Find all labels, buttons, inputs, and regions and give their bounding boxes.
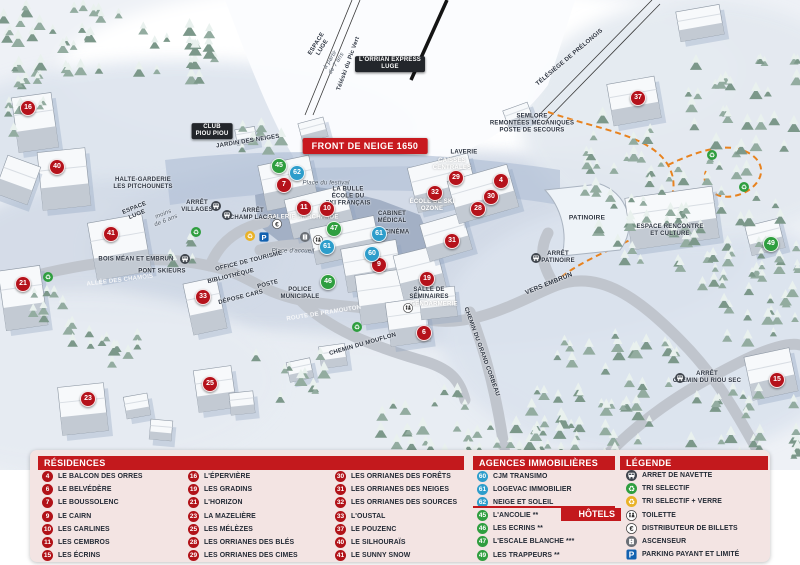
legend-panel: RÉSIDENCES 4LE BALCON DES ORRES6LE BELVÉ… [30, 450, 770, 562]
map-marker-29: 29 [448, 170, 464, 186]
item-label: LES CEMBROS [58, 539, 110, 546]
map-marker-30: 30 [483, 189, 499, 205]
recycle-yellow-icon: ♻ [626, 496, 637, 507]
agency-item: 61LOGEVAC IMMOBILIER [477, 483, 572, 496]
marker-number: 46 [477, 523, 488, 534]
marker-number: 4 [42, 471, 53, 482]
item-label: LA MAZELIÈRE [204, 513, 256, 520]
marker-number: 31 [335, 484, 346, 495]
map-label: L'ORRIAN EXPRESS LUGE [355, 56, 425, 72]
map-marker-37: 37 [630, 90, 646, 106]
residence-item: 41LE SUNNY SNOW [335, 549, 457, 562]
map-label: PONT SKIEURS [138, 269, 185, 276]
marker-number: 28 [188, 537, 199, 548]
marker-number: 19 [188, 484, 199, 495]
item-label: LE BELVÉDÈRE [58, 486, 112, 493]
residence-item: 37LE POUZENC [335, 523, 457, 536]
map-label: POLICE MUNICIPALE [281, 287, 320, 301]
residence-item: 7LE BOUSSOLENC [42, 496, 143, 509]
map-label: GENDARMERIE [410, 302, 457, 309]
svg-text:♻: ♻ [45, 274, 51, 282]
svg-text:€: € [629, 524, 633, 533]
residence-item: 11LES CEMBROS [42, 536, 143, 549]
item-label: LES MÉLÈZES [204, 526, 253, 533]
residence-item: 28LES ORRIANES DES BLÉS [188, 536, 298, 549]
marker-number: 47 [477, 536, 488, 547]
item-label: TOILETTE [642, 512, 676, 519]
svg-text:♻: ♻ [247, 233, 253, 241]
svg-text:♻: ♻ [628, 498, 635, 507]
item-label: L'OUSTAL [351, 513, 385, 520]
legend-item: TOILETTE [626, 509, 739, 522]
map-marker-62: 62 [289, 165, 305, 181]
bus-icon [180, 254, 190, 264]
residences-column-1: 4LE BALCON DES ORRES6LE BELVÉDÈRE7LE BOU… [42, 470, 143, 562]
item-label: PARKING PAYANT ET LIMITÉ [642, 551, 739, 558]
recycle-green-icon: ♻ [707, 150, 717, 160]
map-marker-10: 10 [319, 201, 335, 217]
residence-item: 32LES ORRIANES DES SOURCES [335, 496, 457, 509]
residence-item: 4LE BALCON DES ORRES [42, 470, 143, 483]
map-marker-61: 61 [371, 226, 387, 242]
hotel-item: 47L'ESCALE BLANCHE *** [477, 535, 574, 548]
item-label: L'HORIZON [204, 499, 243, 506]
map-label: ARRÊT VILLAGES [181, 200, 213, 214]
item-label: L'ÉPERVIÈRE [204, 473, 250, 480]
marker-number: 61 [477, 484, 488, 495]
residence-item: 19LES GRADINS [188, 483, 298, 496]
item-label: LES ÉCRINS [58, 552, 100, 559]
map-marker-60: 60 [364, 246, 380, 262]
residence-item: 21L'HORIZON [188, 496, 298, 509]
map-marker-33: 33 [195, 289, 211, 305]
bus-icon [211, 201, 221, 211]
map-label: SEMLORE REMONTÉES MÉCANIQUES POSTE DE SE… [490, 114, 574, 135]
marker-number: 9 [42, 511, 53, 522]
map-label: BOIS MÉAN ET EMBRUN [98, 257, 173, 264]
map-label: HALTE-GARDERIE LES PITCHOUNETS [113, 177, 172, 191]
marker-number: 33 [335, 511, 346, 522]
item-label: LOGEVAC IMMOBILIER [493, 486, 572, 493]
marker-number: 29 [188, 550, 199, 561]
recycle-green-icon: ♻ [739, 182, 749, 192]
legende-header: LÉGENDE [620, 456, 768, 470]
hotel-item: 49LES TRAPPEURS ** [477, 549, 574, 562]
map-marker-31: 31 [444, 233, 460, 249]
marker-number: 16 [188, 471, 199, 482]
elevator-icon [626, 536, 637, 547]
recycle-green-icon: ♻ [43, 272, 53, 282]
map-label: ARRÊT PATINOIRE [541, 251, 575, 265]
map-marker-41: 41 [103, 226, 119, 242]
bus-icon [531, 253, 541, 263]
marker-number: 11 [42, 537, 53, 548]
map-label: LAVERIE [451, 150, 478, 157]
legend-item: PPARKING PAYANT ET LIMITÉ [626, 548, 739, 561]
bus-icon [675, 373, 685, 383]
residence-item: 23LA MAZELIÈRE [188, 510, 298, 523]
residence-item: 40LE SILHOURAÏS [335, 536, 457, 549]
recycle-green-icon: ♻ [352, 322, 362, 332]
marker-number: 40 [335, 537, 346, 548]
marker-number: 6 [42, 484, 53, 495]
map-label: CINÉMA [385, 230, 410, 237]
marker-number: 21 [188, 497, 199, 508]
resort-map: ESPACE LUGEà partir de 7 ansTéléski du P… [0, 0, 800, 470]
item-label: L'ESCALE BLANCHE *** [493, 538, 574, 545]
marker-number: 60 [477, 471, 488, 482]
agencies-header: AGENCES IMMOBILIÈRES [473, 456, 615, 470]
map-marker-61: 61 [319, 239, 335, 255]
hotel-item: 46LES ECRINS ** [477, 522, 574, 535]
legend-item: €DISTRIBUTEUR DE BILLETS [626, 522, 739, 535]
marker-number: 37 [335, 524, 346, 535]
recycle-yellow-icon: ♻ [245, 231, 255, 241]
euro-icon: € [626, 523, 637, 534]
residence-item: 16L'ÉPERVIÈRE [188, 470, 298, 483]
map-marker-49: 49 [763, 236, 779, 252]
item-label: LES TRAPPEURS ** [493, 552, 560, 559]
map-banner: FRONT DE NEIGE 1650 [303, 138, 428, 154]
item-label: TRI SELECTIF [642, 485, 690, 492]
item-label: DISTRIBUTEUR DE BILLETS [642, 525, 738, 532]
svg-text:♻: ♻ [628, 485, 635, 494]
legend-item: ASCENSEUR [626, 535, 739, 548]
svg-text:P: P [261, 233, 266, 242]
item-label: LES ORRIANES DES NEIGES [351, 486, 449, 493]
marker-number: 15 [42, 550, 53, 561]
residence-item: 30LES ORRIANES DES FORÊTS [335, 470, 457, 483]
svg-text:P: P [629, 551, 635, 560]
residence-item: 15LES ÉCRINS [42, 549, 143, 562]
residence-item: 31LES ORRIANES DES NEIGES [335, 483, 457, 496]
map-marker-28: 28 [470, 201, 486, 217]
item-label: LES ECRINS ** [493, 525, 543, 532]
item-label: LES ORRIANES DES CIMES [204, 552, 298, 559]
item-label: ASCENSEUR [642, 538, 686, 545]
map-label: CLUB PIOU PIOU [192, 123, 233, 139]
residences-column-2: 16L'ÉPERVIÈRE19LES GRADINS21L'HORIZON23L… [188, 470, 298, 562]
marker-number: 23 [188, 511, 199, 522]
item-label: LES ORRIANES DES SOURCES [351, 499, 457, 506]
map-label: PATINOIRE [569, 214, 605, 221]
item-label: LES CARLINES [58, 526, 110, 533]
map-marker-47: 47 [326, 221, 342, 237]
svg-text:♻: ♻ [709, 152, 715, 160]
marker-number: 49 [477, 550, 488, 561]
item-label: L'ANCOLIE ** [493, 512, 538, 519]
item-label: LE CAIRN [58, 513, 91, 520]
toilet-icon [403, 303, 413, 313]
legend-item: ARRET DE NAVETTE [626, 469, 739, 482]
residence-item: 33L'OUSTAL [335, 510, 457, 523]
legend-item: ♻TRI SELECTIF [626, 482, 739, 495]
bus-icon [222, 210, 232, 220]
residence-item: 10LES CARLINES [42, 523, 143, 536]
residences-header: RÉSIDENCES [38, 456, 464, 470]
residence-item: 25LES MÉLÈZES [188, 523, 298, 536]
parking-icon: P [626, 549, 637, 560]
residences-column-3: 30LES ORRIANES DES FORÊTS31LES ORRIANES … [335, 470, 457, 562]
map-marker-25: 25 [202, 376, 218, 392]
marker-number: 25 [188, 524, 199, 535]
toilet-icon [626, 510, 637, 521]
legend-item: ♻TRI SELECTIF + VERRE [626, 495, 739, 508]
resort-map-page: ESPACE LUGEà partir de 7 ansTéléski du P… [0, 0, 800, 565]
marker-number: 10 [42, 524, 53, 535]
parking-icon: P [259, 232, 269, 242]
item-label: ARRET DE NAVETTE [642, 472, 712, 479]
item-label: LE BALCON DES ORRES [58, 473, 143, 480]
item-label: LES ORRIANES DES FORÊTS [351, 473, 451, 480]
map-marker-19: 19 [419, 271, 435, 287]
euro-icon: € [272, 219, 282, 229]
hotels-list: 45L'ANCOLIE **46LES ECRINS **47L'ESCALE … [477, 509, 574, 562]
map-marker-40: 40 [49, 159, 65, 175]
marker-number: 30 [335, 471, 346, 482]
map-marker-16: 16 [20, 100, 36, 116]
item-label: LES GRADINS [204, 486, 252, 493]
map-marker-45: 45 [271, 158, 287, 174]
map-marker-6: 6 [416, 325, 432, 341]
map-label: ÉCOLE DE SKI OZONE [410, 199, 455, 213]
marker-number: 41 [335, 550, 346, 561]
map-marker-21: 21 [15, 276, 31, 292]
item-label: LE POUZENC [351, 526, 396, 533]
svg-text:♻: ♻ [193, 229, 199, 237]
map-label: SALLE DE SÉMINAIRES [409, 287, 448, 301]
recycle-green-icon: ♻ [191, 227, 201, 237]
map-marker-46: 46 [320, 274, 336, 290]
map-marker-32: 32 [427, 185, 443, 201]
item-label: TRI SELECTIF + VERRE [642, 498, 722, 505]
marker-number: 32 [335, 497, 346, 508]
residence-item: 6LE BELVÉDÈRE [42, 483, 143, 496]
svg-text:€: € [275, 221, 279, 228]
residence-item: 9LE CAIRN [42, 510, 143, 523]
elevator-icon [300, 232, 310, 242]
map-marker-7: 7 [276, 177, 292, 193]
item-label: LES ORRIANES DES BLÉS [204, 539, 294, 546]
agency-item: 60CJM TRANSIMO [477, 470, 572, 483]
item-label: LE SUNNY SNOW [351, 552, 410, 559]
agencies-list: 60CJM TRANSIMO61LOGEVAC IMMOBILIER62NEIG… [477, 470, 572, 510]
residence-item: 29LES ORRIANES DES CIMES [188, 549, 298, 562]
legende-list: ARRET DE NAVETTE♻TRI SELECTIF♻TRI SELECT… [626, 469, 739, 561]
map-marker-23: 23 [80, 391, 96, 407]
map-marker-15: 15 [769, 372, 785, 388]
hotel-item: 45L'ANCOLIE ** [477, 509, 574, 522]
svg-text:♻: ♻ [354, 324, 360, 332]
item-label: LE BOUSSOLENC [58, 499, 119, 506]
item-label: LE SILHOURAÏS [351, 539, 406, 546]
bus-icon [626, 470, 637, 481]
map-marker-11: 11 [296, 200, 312, 216]
item-label: CJM TRANSIMO [493, 473, 547, 480]
marker-number: 7 [42, 497, 53, 508]
svg-text:♻: ♻ [741, 184, 747, 192]
recycle-green-icon: ♻ [626, 483, 637, 494]
map-marker-4: 4 [493, 173, 509, 189]
map-label: CABINET MÉDICAL [378, 211, 407, 225]
map-label: ESPACE RENCONTRE ET CULTURE [636, 224, 703, 238]
marker-number: 45 [477, 510, 488, 521]
